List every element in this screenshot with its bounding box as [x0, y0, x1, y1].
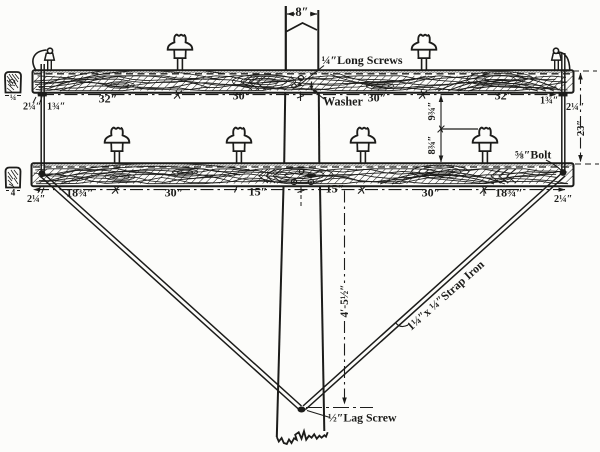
svg-text:9¾″: 9¾″ — [427, 102, 438, 121]
svg-text:15″: 15″ — [249, 185, 268, 199]
svg-text:1¾″: 1¾″ — [47, 102, 65, 113]
svg-text:18¾″: 18¾″ — [495, 186, 523, 200]
svg-text:1¼″x ¼″Strap Iron: 1¼″x ¼″Strap Iron — [404, 257, 488, 333]
svg-text:¼: ¼ — [10, 92, 16, 102]
svg-text:8″: 8″ — [295, 5, 308, 19]
svg-text:1¾″: 1¾″ — [540, 96, 558, 107]
svg-text:½″Lag Screw: ½″Lag Screw — [328, 411, 397, 425]
svg-text:4: 4 — [11, 188, 16, 198]
svg-text:30″: 30″ — [233, 89, 252, 103]
svg-text:23″: 23″ — [576, 120, 587, 136]
svg-text:8¾″: 8¾″ — [427, 136, 438, 155]
svg-text:30″: 30″ — [422, 186, 441, 200]
svg-text:30″: 30″ — [165, 186, 184, 200]
svg-text:¼″Long Screws: ¼″Long Screws — [322, 53, 403, 67]
svg-text:2¼″: 2¼″ — [27, 194, 45, 205]
svg-text:4′-5½″: 4′-5½″ — [339, 285, 351, 318]
svg-text:30″: 30″ — [368, 91, 387, 105]
svg-text:32″: 32″ — [99, 92, 118, 106]
svg-text:2¼″: 2¼″ — [554, 194, 572, 205]
svg-text:2¼″: 2¼″ — [566, 102, 584, 113]
svg-text:15″: 15″ — [326, 182, 345, 196]
svg-text:Washer: Washer — [323, 95, 364, 109]
svg-text:2¼″: 2¼″ — [23, 102, 41, 113]
svg-text:32″: 32″ — [495, 89, 514, 103]
svg-text:⅝″Bolt: ⅝″Bolt — [515, 148, 551, 162]
